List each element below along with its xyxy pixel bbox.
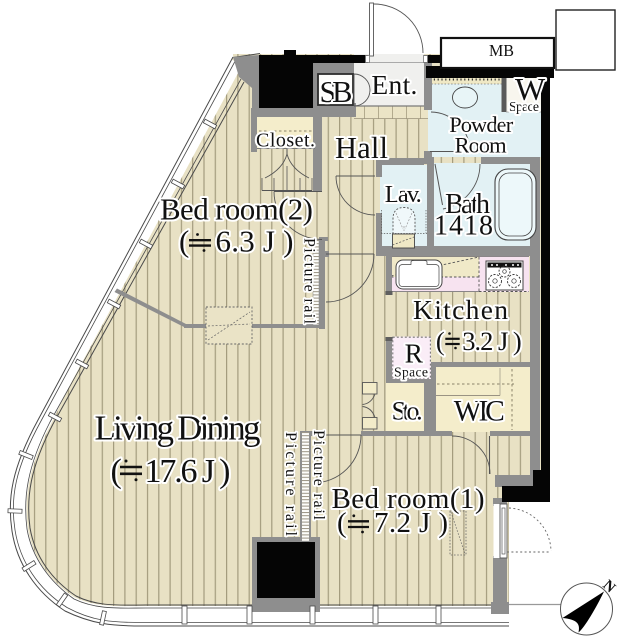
svg-text:(: ( xyxy=(179,224,189,259)
svg-text:7.2 J ): 7.2 J ) xyxy=(374,507,448,539)
svg-text:Hall: Hall xyxy=(335,131,388,165)
svg-text:Picture rail: Picture rail xyxy=(310,430,327,521)
svg-text:Kitchen: Kitchen xyxy=(413,294,508,325)
svg-text:Picture rail: Picture rail xyxy=(301,238,318,325)
svg-text:(: ( xyxy=(436,326,445,356)
svg-text:Picture rail: Picture rail xyxy=(282,432,299,537)
svg-text:Space: Space xyxy=(509,99,539,114)
svg-text:(: ( xyxy=(337,507,347,539)
svg-text:Sto.: Sto. xyxy=(392,396,423,425)
svg-text:Ent.: Ent. xyxy=(371,69,417,100)
svg-text:SB: SB xyxy=(320,75,353,109)
svg-text:1418: 1418 xyxy=(434,211,493,242)
svg-text:MB: MB xyxy=(489,41,514,60)
svg-text:Bed room(2): Bed room(2) xyxy=(160,192,313,227)
svg-text:Living Dining: Living Dining xyxy=(95,409,261,448)
svg-text:Room: Room xyxy=(455,133,507,158)
svg-text:17.6 J ): 17.6 J ) xyxy=(145,453,231,490)
svg-text:WIC: WIC xyxy=(454,396,505,428)
svg-text:(: ( xyxy=(111,453,122,490)
svg-text:3.2 J ): 3.2 J ) xyxy=(462,326,521,356)
svg-text:Lav.: Lav. xyxy=(385,181,422,208)
svg-text:6.3 J ): 6.3 J ) xyxy=(216,224,294,259)
svg-text:Closet.: Closet. xyxy=(256,130,315,152)
svg-text:Space: Space xyxy=(394,365,428,380)
